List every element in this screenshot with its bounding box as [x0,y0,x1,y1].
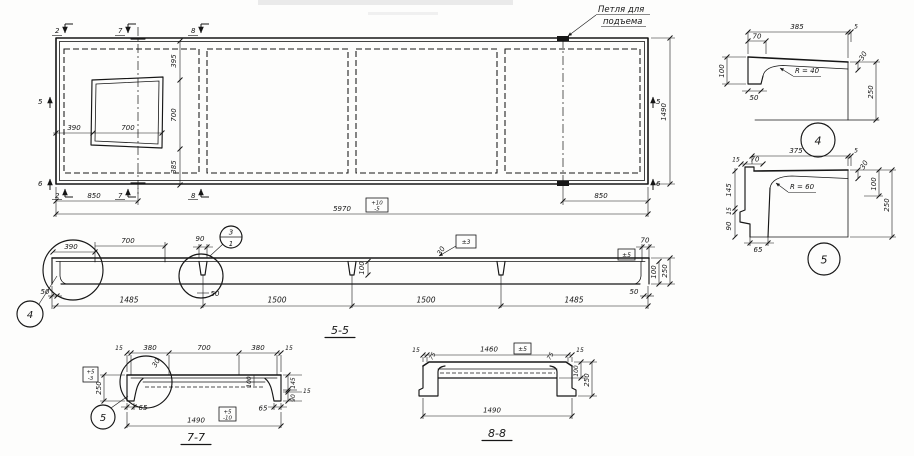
s55-dim-70: 70 [641,237,650,245]
section-5-5-title: 5-5 [331,324,349,337]
d5-dim-375: 375 [789,147,803,155]
d5-dim-145: 145 [725,183,733,197]
section-mark-7-bottom: 7 [115,189,136,200]
d4-dim-5: 5 [854,24,858,31]
d5-dim-65: 65 [754,246,763,254]
d5-dim-70: 70 [751,156,760,164]
section-8-8-title: 8-8 [488,427,506,440]
s77-dim-145: 145 [290,377,297,389]
section-7-7-title: 7-7 [187,431,205,444]
d4-dim-50: 50 [750,94,759,102]
d4-dim-70: 70 [753,33,762,41]
faded-print-artifact [368,12,438,15]
s77-dim-380-left: 380 [143,344,157,352]
s55-dim-30: 30 [436,245,448,257]
loop-note-line2: подъема [603,17,643,27]
svg-text:7: 7 [118,27,123,35]
engineering-drawing: Петля для подъема 2 7 8 2 [0,0,914,456]
s77-dim-700: 700 [197,344,211,352]
s55-tol-pm3: ±3 [462,239,471,246]
section-mark-7-top: 7 [115,24,136,36]
detail-4-number: 4 [815,135,822,148]
section-mark-6-right: 6 [653,179,661,190]
d4-radius-label: R = 40 [795,67,820,75]
section-mark-5-left: 5 [38,97,50,108]
svg-text:5: 5 [38,98,43,106]
d4-dim-385: 385 [790,23,804,31]
dim-5970: 5970 [333,205,351,213]
s55-dim-700: 700 [121,237,135,245]
svg-text:2: 2 [55,27,60,35]
dim-395: 395 [170,54,178,68]
section-5-5: 4 3 1 390 700 90 ±3 30 100 [17,226,675,338]
s88-dim-15-left: 15 [412,347,420,354]
d4-dim-250: 250 [867,85,875,99]
faded-print-artifact [258,0,513,5]
detail-5-number: 5 [821,254,828,267]
lifting-loop-top [557,36,569,41]
s55-dim-250: 250 [661,264,669,278]
d5-dim-100: 100 [870,177,878,191]
s55-dim-390: 390 [64,243,78,251]
lifting-loop-bottom [557,181,569,186]
callout-1: 1 [229,240,233,248]
dim-700-vertical: 700 [170,108,178,122]
d5-dim-90: 90 [725,221,733,230]
callout-4-number: 4 [27,310,33,321]
s77-dim-65-right: 65 [259,405,268,413]
s88-dim-100: 100 [573,365,580,377]
s88-dim-15-right: 15 [576,347,584,354]
d5-dim-30: 30 [859,159,871,171]
section-7-7: 15 380 700 380 15 30 +5 -3 250 5 65 [83,344,311,445]
svg-text:7: 7 [118,192,123,200]
svg-text:8: 8 [191,27,196,35]
plan-view: Петля для подъема 2 7 8 2 [38,5,675,217]
s77-dim-15-chain: 15 [303,388,311,395]
s88-tol-pm5: ±5 [518,346,527,353]
s88-dim-75-right: 75 [546,351,556,361]
internal-rib [348,262,356,309]
s77-dim-100: 100 [246,376,253,388]
s55-span-1485-b: 1485 [564,296,583,305]
dim-700-horizontal: 700 [121,124,135,132]
s77-tol-minus10: -10 [223,416,232,422]
section-mark-6-left: 6 [38,179,50,190]
s55-dim-50-left: 50 [41,288,50,296]
dim-850-right: 850 [594,192,608,200]
s55-span-1485-a: 1485 [119,296,138,305]
svg-text:6: 6 [38,180,43,188]
s77-callout-5: 5 [100,413,106,424]
d5-dim-15-left: 15 [726,207,733,215]
section-mark-8-bottom: 8 [188,189,209,200]
s55-tol-pm5: ±5 [622,252,631,259]
dim-385: 385 [170,160,178,174]
s77-dim-380-right: 380 [251,344,265,352]
s55-dim-100-right: 100 [650,265,658,279]
dim-1490-plan: 1490 [660,103,668,121]
s88-dim-1490: 1490 [483,407,501,415]
s55-span-1500-b: 1500 [416,296,435,305]
tol-minus5: -5 [374,207,380,213]
detail-5: 375 5 15 70 145 15 90 65 R = 60 30 100 2… [725,147,896,275]
internal-rib [497,262,505,309]
s55-dim-90: 90 [196,235,205,243]
s55-dim-50-right: 50 [630,288,639,296]
section-8-8: 15 1460 ±5 15 75 75 100 250 1490 8-8 [412,343,597,441]
s77-dim-65-left: 65 [139,404,148,412]
s88-dim-1460: 1460 [480,346,498,354]
drawing-sheet: Петля для подъема 2 7 8 2 [0,0,914,456]
dim-390: 390 [67,124,81,132]
internal-rib [199,262,207,309]
s77-dim-250: 250 [95,381,103,395]
d5-dim-15-top: 15 [732,157,740,164]
s77-dim-90: 90 [290,394,297,402]
d4-dim-100: 100 [718,64,726,78]
s77-tol-plus5: +5 [86,370,95,376]
d5-dim-250: 250 [883,198,891,212]
s77-dim-15-right: 15 [285,345,293,352]
section-mark-2-bottom: 2 [52,189,73,200]
section-mark-2-top: 2 [52,24,73,36]
s77-dim-15-left: 15 [115,345,123,352]
s55-span-1500-a: 1500 [267,296,286,305]
s55-dim-50-mid: 50 [211,290,220,298]
section-mark-8-top: 8 [188,24,209,36]
s77-tol-minus3: -3 [88,376,94,382]
detail-4: 100 50 70 385 5 30 250 R = 40 4 [718,23,880,157]
svg-text:8: 8 [191,192,196,200]
callout-3: 3 [229,229,233,237]
s77-dim-1490: 1490 [187,417,205,425]
s88-dim-250: 250 [583,373,591,387]
s55-dim-100-mid: 100 [358,261,366,275]
d5-radius-label: R = 60 [790,183,815,191]
d5-dim-5: 5 [854,148,858,155]
dim-850-left: 850 [87,192,101,200]
opening-outline [91,77,163,148]
loop-note-line1: Петля для [598,5,644,15]
